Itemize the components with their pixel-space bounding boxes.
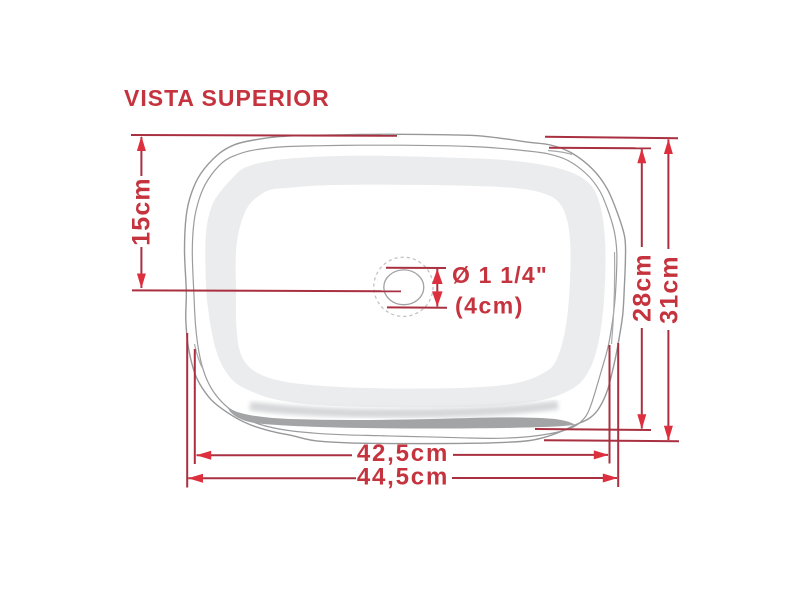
svg-text:(4cm): (4cm) xyxy=(455,293,524,319)
svg-text:VISTA SUPERIOR: VISTA SUPERIOR xyxy=(124,85,330,111)
svg-text:28cm: 28cm xyxy=(628,253,656,322)
svg-text:Ø 1 1/4": Ø 1 1/4" xyxy=(452,262,548,288)
svg-text:15cm: 15cm xyxy=(128,177,156,246)
svg-text:31cm: 31cm xyxy=(655,255,683,324)
svg-text:44,5cm: 44,5cm xyxy=(357,464,449,491)
